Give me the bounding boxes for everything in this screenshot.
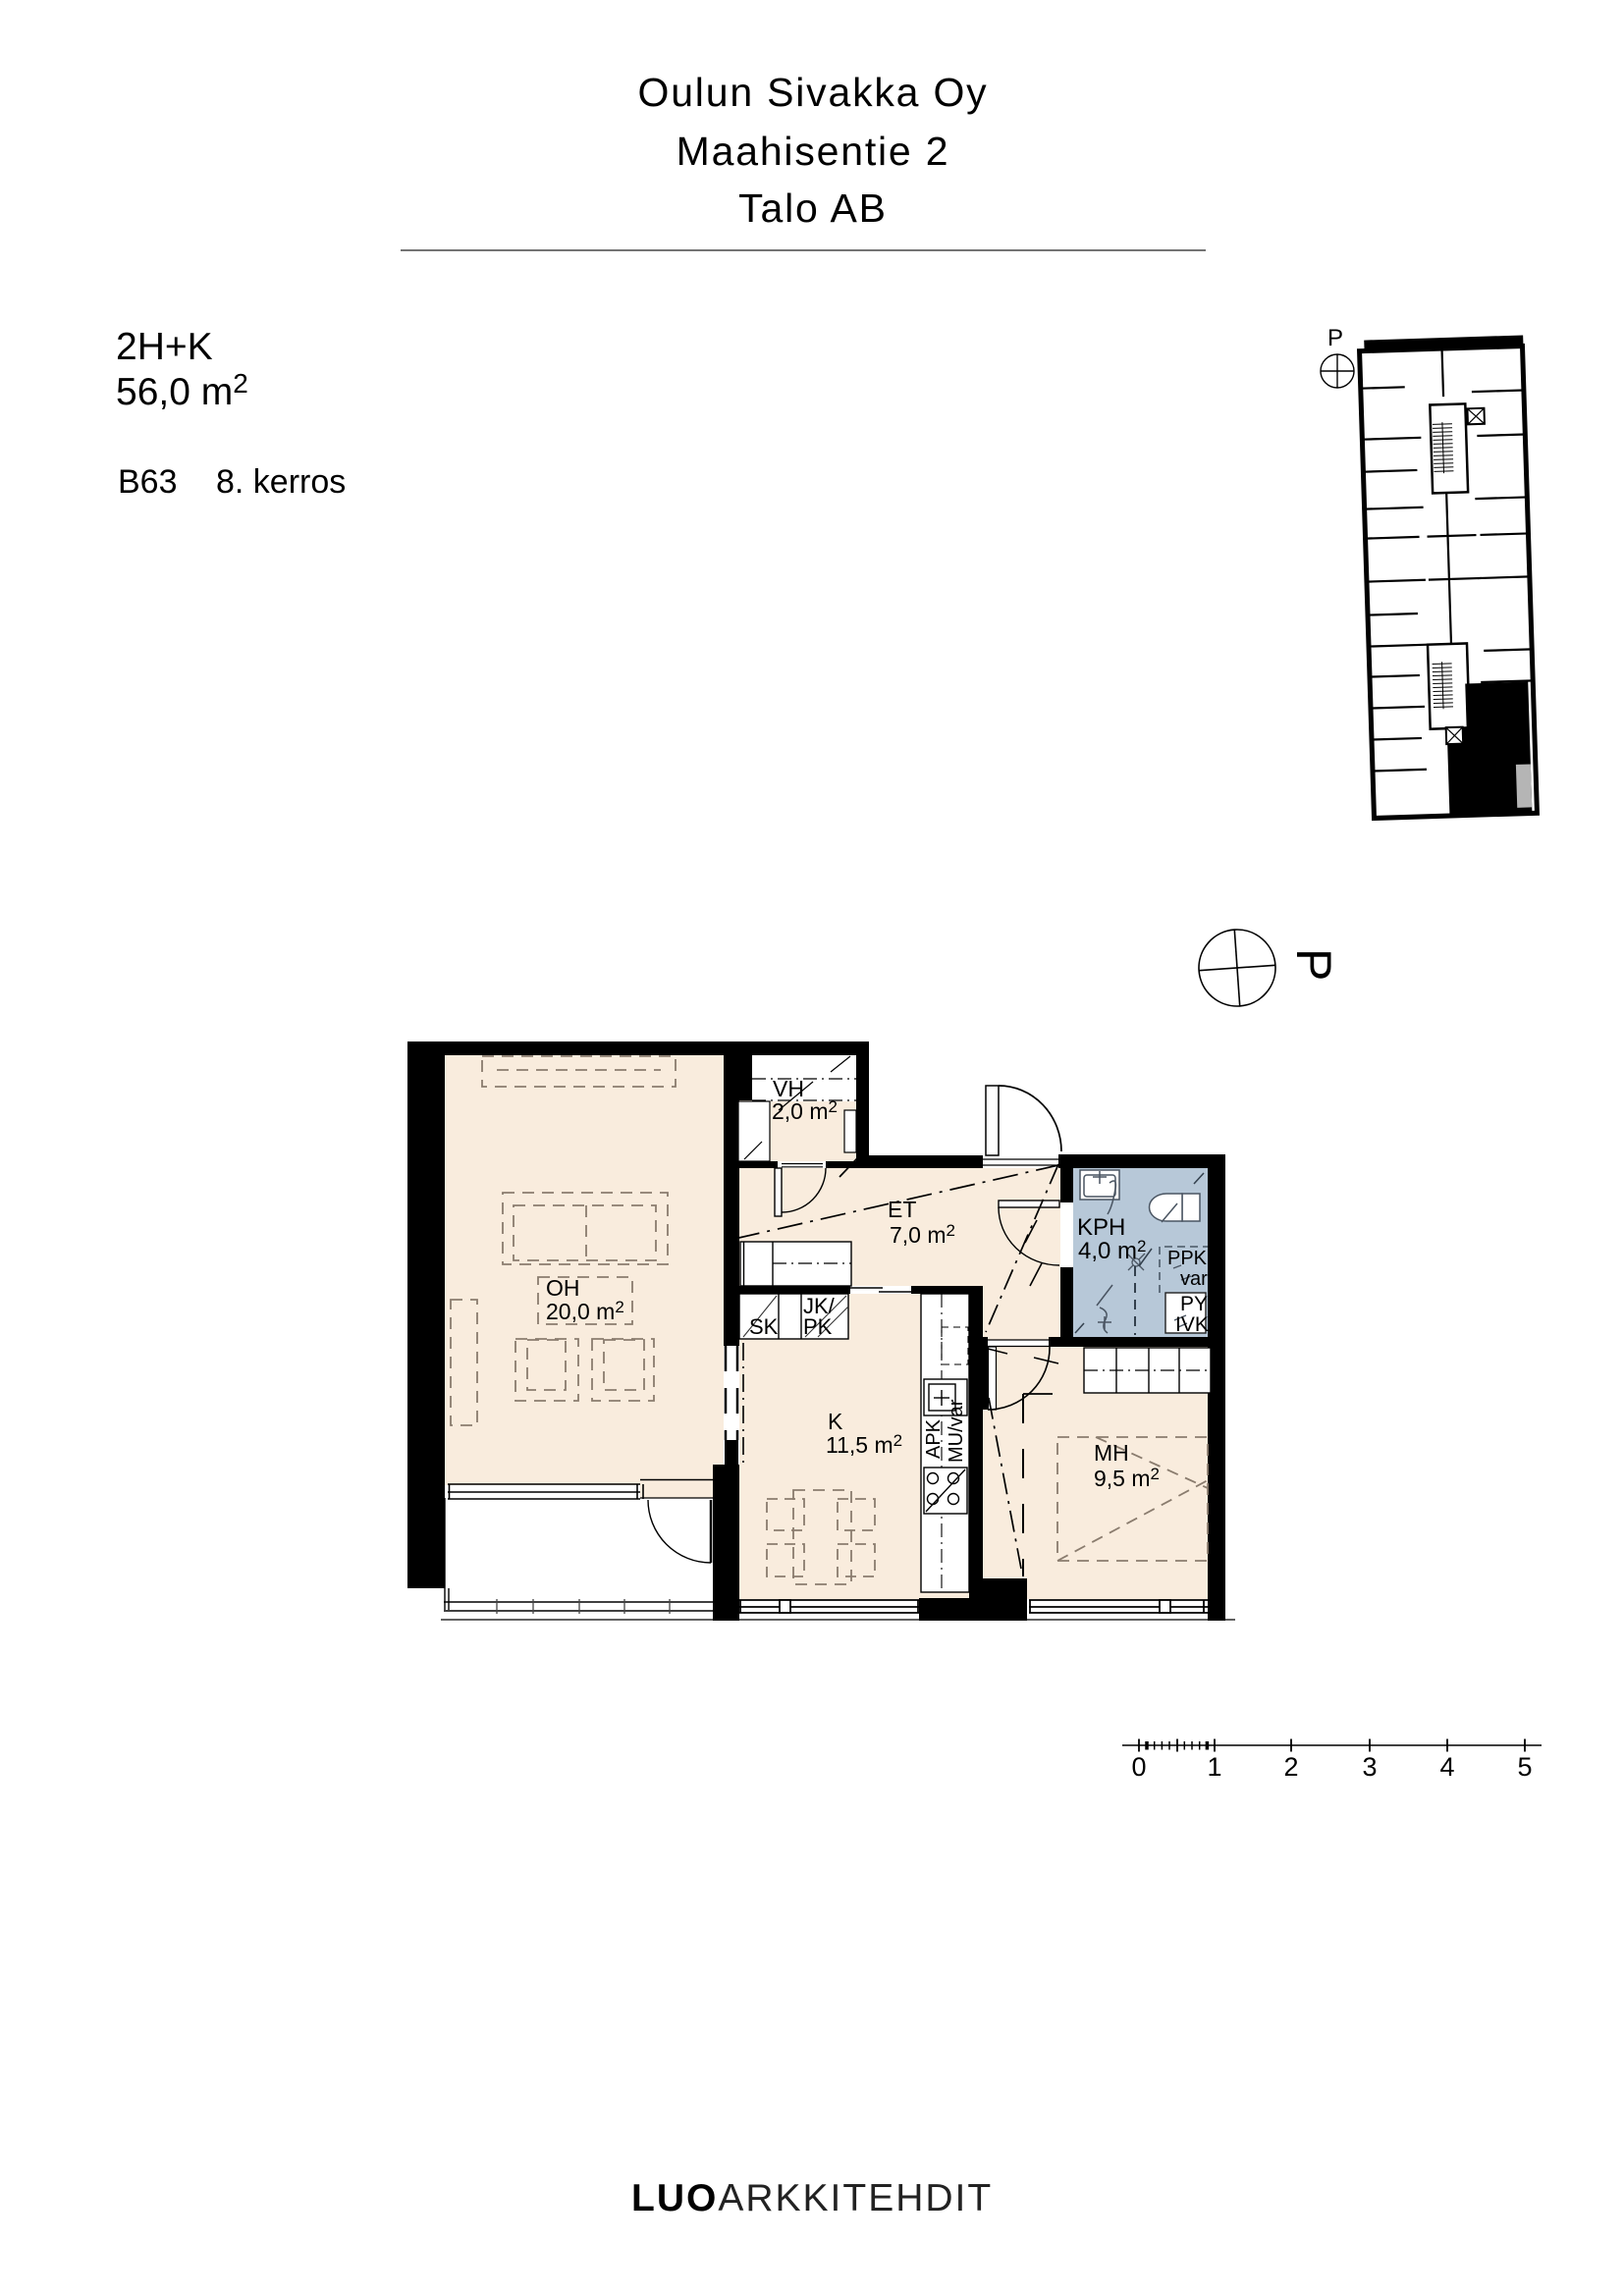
svg-text:9,5 m2: 9,5 m2 — [1094, 1465, 1160, 1491]
svg-text:8. kerros: 8. kerros — [216, 463, 346, 501]
svg-text:2,0 m2: 2,0 m2 — [772, 1097, 838, 1124]
svg-text:PY: PY — [1180, 1293, 1208, 1315]
svg-text:MU/var: MU/var — [946, 1399, 967, 1463]
svg-text:3: 3 — [1362, 1752, 1377, 1782]
svg-text:4: 4 — [1439, 1752, 1454, 1782]
svg-text:PPK: PPK — [1167, 1248, 1208, 1269]
svg-text:7,0 m2: 7,0 m2 — [890, 1221, 955, 1248]
svg-text:IVK: IVK — [1175, 1313, 1209, 1336]
svg-text:LUOARKKITEHDIT: LUOARKKITEHDIT — [631, 2177, 993, 2219]
svg-text:P: P — [1286, 948, 1341, 981]
svg-text:1: 1 — [1207, 1752, 1221, 1782]
svg-text:Maahisentie 2: Maahisentie 2 — [677, 129, 950, 174]
svg-text:11,5 m2: 11,5 m2 — [826, 1431, 902, 1458]
svg-text:var: var — [1180, 1268, 1208, 1290]
svg-text:P: P — [1327, 325, 1343, 351]
svg-text:2H+K: 2H+K — [116, 326, 213, 368]
svg-text:Talo AB: Talo AB — [738, 186, 888, 231]
svg-text:5: 5 — [1517, 1752, 1532, 1782]
svg-text:Oulun Sivakka Oy: Oulun Sivakka Oy — [638, 70, 989, 115]
svg-text:MH: MH — [1094, 1440, 1129, 1466]
svg-text:20,0 m2: 20,0 m2 — [546, 1298, 624, 1324]
svg-text:SK: SK — [749, 1314, 779, 1339]
svg-text:4,0 m2: 4,0 m2 — [1078, 1237, 1147, 1264]
svg-text:2: 2 — [1283, 1752, 1298, 1782]
svg-text:PK: PK — [803, 1314, 833, 1339]
svg-text:0: 0 — [1131, 1752, 1146, 1782]
svg-text:K: K — [828, 1409, 843, 1434]
svg-text:OH: OH — [546, 1275, 580, 1301]
svg-text:KPH: KPH — [1077, 1214, 1125, 1241]
svg-text:APK: APK — [923, 1418, 945, 1459]
svg-text:ET: ET — [888, 1197, 916, 1222]
svg-text:B63: B63 — [118, 463, 178, 501]
svg-text:56,0 m2: 56,0 m2 — [116, 368, 248, 413]
